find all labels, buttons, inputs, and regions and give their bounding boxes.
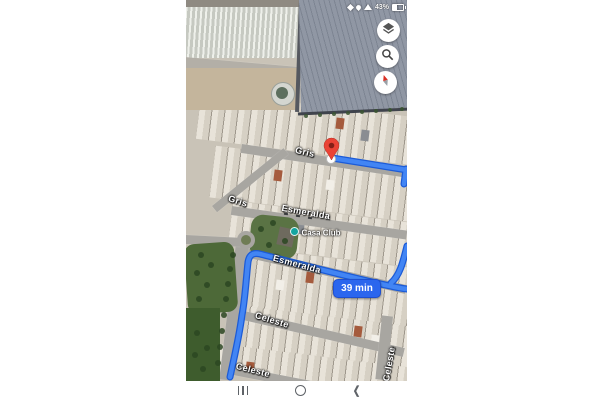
home-button[interactable] xyxy=(288,381,312,400)
home-icon xyxy=(295,385,306,396)
back-button[interactable]: ❮ xyxy=(345,381,369,400)
poi-label-casa-club[interactable]: Casa Club xyxy=(301,229,340,238)
search-button[interactable] xyxy=(376,45,399,68)
layers-icon xyxy=(382,22,395,40)
android-nav-bar: ❮ xyxy=(186,381,407,400)
compass-icon xyxy=(379,74,392,92)
back-icon: ❮ xyxy=(353,384,360,397)
route-overlay xyxy=(186,0,407,381)
search-icon xyxy=(381,48,394,66)
share-icon xyxy=(347,3,354,10)
screenshot-canvas: Gris Gris Esmeralda Esmeralda Celeste Ce… xyxy=(0,0,600,400)
recents-button[interactable] xyxy=(231,381,255,400)
satellite-map[interactable]: Gris Gris Esmeralda Esmeralda Celeste Ce… xyxy=(186,0,407,381)
wifi-icon xyxy=(364,4,372,10)
layers-button[interactable] xyxy=(377,19,400,42)
status-bar: 43% xyxy=(348,2,404,12)
phone-screenshot: Gris Gris Esmeralda Esmeralda Celeste Ce… xyxy=(186,0,407,400)
location-icon xyxy=(355,3,362,10)
route-duration-badge[interactable]: 39 min xyxy=(333,279,381,298)
poi-dot[interactable] xyxy=(290,227,299,236)
battery-percent: 43% xyxy=(375,4,389,11)
recents-icon xyxy=(238,386,249,395)
battery-icon xyxy=(392,4,404,11)
compass-button[interactable] xyxy=(374,71,397,94)
